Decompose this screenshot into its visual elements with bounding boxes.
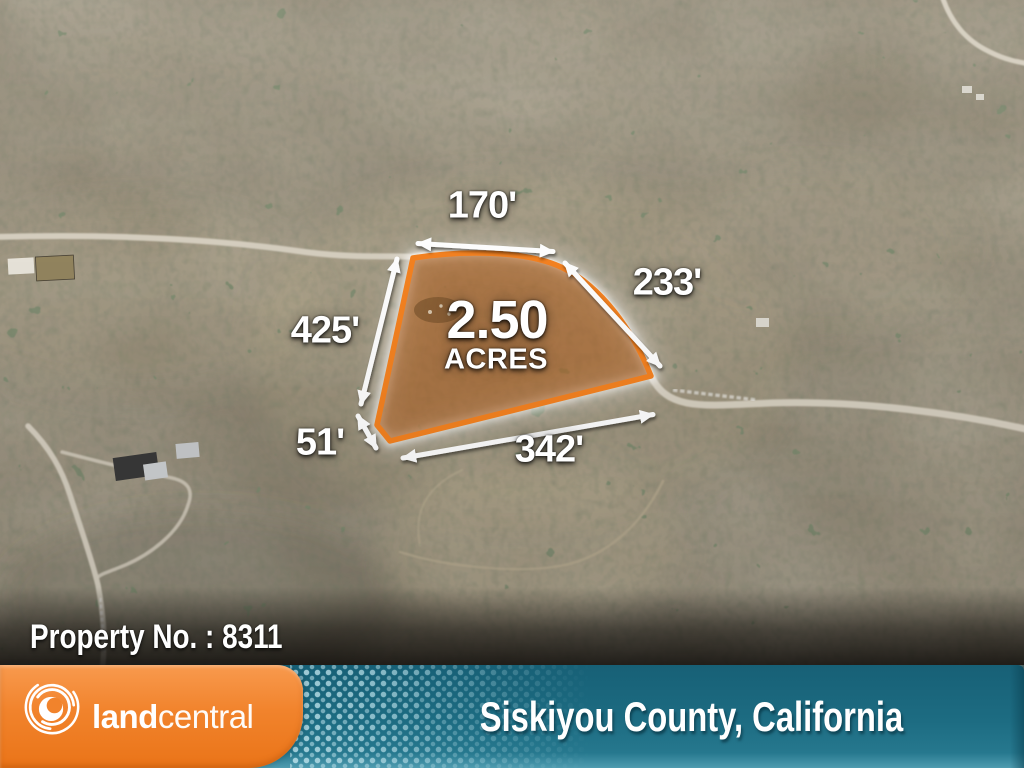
acreage-unit: ACRES	[444, 344, 548, 377]
dimension-label-right: 233'	[633, 262, 701, 305]
dimension-label-left: 425'	[291, 310, 359, 353]
satellite-map: 170' 233' 425' 51' 342' 2.50 ACRES Prope…	[0, 0, 1024, 665]
property-listing-image: 170' 233' 425' 51' 342' 2.50 ACRES Prope…	[0, 0, 1024, 768]
footer: Siskiyou County, California landcentral	[0, 665, 1024, 768]
dimension-label-top: 170'	[448, 185, 516, 228]
location-title: Siskiyou County, California	[480, 693, 904, 741]
acreage-value: 2.50	[446, 289, 547, 351]
property-number: Property No. : 8311	[30, 618, 283, 657]
property-number-bar: Property No. : 8311	[0, 587, 1024, 665]
dimension-label-bottom-left: 51'	[296, 422, 344, 465]
brand-name-light: central	[158, 698, 254, 736]
landcentral-logo-icon	[21, 676, 83, 738]
location-title-wrap: Siskiyou County, California	[303, 665, 1024, 768]
brand-name-bold: land	[92, 698, 158, 736]
dimension-label-bottom: 342'	[515, 429, 583, 472]
brand-lozenge: landcentral	[0, 665, 303, 768]
brand-name: landcentral	[92, 665, 253, 768]
